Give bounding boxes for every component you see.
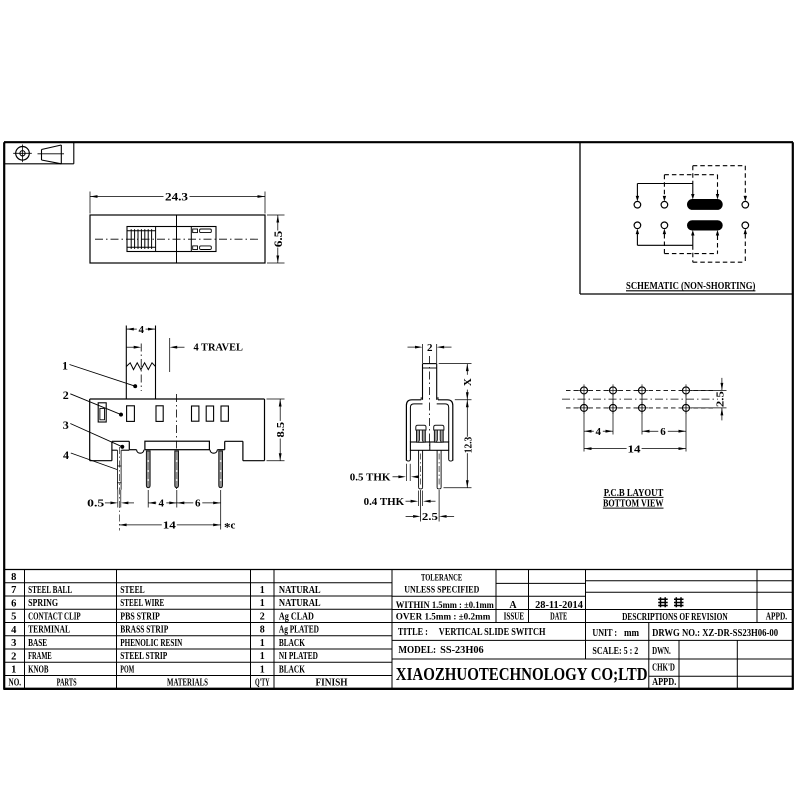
svg-text:UNIT :: UNIT :	[592, 628, 617, 639]
svg-text:APPD.: APPD.	[652, 677, 677, 688]
svg-text:7: 7	[11, 585, 16, 596]
svg-text:12.3: 12.3	[463, 436, 475, 453]
svg-text:VERTICAL SLIDE SWITCH: VERTICAL SLIDE SWITCH	[439, 627, 546, 638]
svg-text:MATERIALS: MATERIALS	[167, 678, 208, 689]
svg-text:UNLESS SPECIFIED: UNLESS SPECIFIED	[404, 586, 479, 596]
svg-text:BLACK: BLACK	[279, 664, 305, 675]
svg-text:*: *	[224, 519, 231, 534]
svg-text:ISSUE: ISSUE	[504, 612, 525, 623]
svg-text:4: 4	[159, 498, 165, 510]
svg-text:2: 2	[11, 651, 16, 662]
svg-text:X: X	[462, 378, 474, 386]
svg-text:Q'TY: Q'TY	[255, 678, 270, 689]
svg-text:FRAME: FRAME	[28, 651, 52, 662]
svg-text:BASE: BASE	[28, 638, 47, 649]
svg-text:SPRING: SPRING	[28, 598, 58, 609]
svg-text:CONTACT CLIP: CONTACT CLIP	[28, 611, 81, 622]
svg-text:4: 4	[596, 426, 602, 438]
svg-text:1: 1	[260, 598, 265, 609]
svg-text:DWN.: DWN.	[652, 646, 671, 657]
svg-text:TERMINAL: TERMINAL	[28, 625, 70, 636]
svg-text:6: 6	[660, 426, 666, 438]
svg-text:POM: POM	[120, 664, 134, 675]
svg-text:A: A	[509, 600, 517, 611]
svg-text:0.4 THK: 0.4 THK	[364, 497, 405, 508]
svg-text:NI PLATED: NI PLATED	[279, 651, 318, 662]
svg-text:DESCRIPTIONS OF REVISION: DESCRIPTIONS OF REVISION	[622, 612, 728, 623]
svg-text:2: 2	[260, 611, 265, 622]
svg-text:STEEL: STEEL	[120, 585, 145, 596]
svg-text:STEEL STRIP: STEEL STRIP	[120, 651, 167, 662]
svg-text:4: 4	[63, 448, 69, 462]
svg-text:0.5 THK: 0.5 THK	[350, 472, 391, 483]
svg-text:3: 3	[63, 418, 69, 432]
svg-text:STEEL BALL: STEEL BALL	[28, 585, 72, 596]
svg-text:SCALE: 5 : 2: SCALE: 5 : 2	[592, 646, 638, 657]
svg-text:c: c	[231, 519, 236, 531]
svg-text:0.5: 0.5	[87, 498, 104, 509]
svg-text:NATURAL: NATURAL	[279, 598, 321, 609]
svg-text:1: 1	[11, 665, 16, 676]
svg-text:6: 6	[195, 498, 201, 510]
svg-text:8: 8	[11, 572, 16, 583]
svg-text:5: 5	[11, 612, 16, 623]
svg-text:PARTS: PARTS	[57, 678, 77, 689]
svg-text:NO.: NO.	[9, 678, 22, 689]
svg-text:Ag PLATED: Ag PLATED	[279, 625, 319, 636]
svg-text:OVER 1.5mm : ±0.2mm: OVER 1.5mm : ±0.2mm	[396, 613, 491, 623]
svg-text:Ag CLAD: Ag CLAD	[279, 611, 314, 622]
svg-text:PHENOLIC RESIN: PHENOLIC RESIN	[120, 638, 183, 649]
svg-text:mm: mm	[624, 628, 640, 639]
svg-text:28-11-2014: 28-11-2014	[535, 600, 583, 611]
svg-text:2.5: 2.5	[716, 391, 727, 407]
svg-text:24.3: 24.3	[165, 191, 188, 203]
svg-text:FINISH: FINISH	[316, 678, 348, 689]
svg-text:2: 2	[427, 342, 433, 354]
svg-text:4: 4	[11, 625, 17, 636]
svg-text:DRWG NO.: XZ-DR-SS23H06-00: DRWG NO.: XZ-DR-SS23H06-00	[652, 628, 778, 639]
svg-text:8.5: 8.5	[275, 421, 287, 437]
svg-text:XIAOZHUOTECHNOLOGY CO;LTD: XIAOZHUOTECHNOLOGY CO;LTD	[396, 664, 648, 684]
svg-text:STEEL WIRE: STEEL WIRE	[120, 598, 164, 609]
svg-text:APPD.: APPD.	[766, 612, 788, 623]
svg-text:1: 1	[260, 651, 265, 662]
svg-text:SCHEMATIC (NON-SHORTING): SCHEMATIC (NON-SHORTING)	[626, 280, 756, 292]
svg-text:1: 1	[260, 664, 265, 675]
svg-text:14: 14	[628, 443, 642, 455]
svg-text:3: 3	[11, 638, 16, 649]
svg-text:NATURAL: NATURAL	[279, 585, 321, 596]
svg-text:DATE: DATE	[550, 612, 567, 623]
svg-text:2.5: 2.5	[422, 512, 438, 523]
svg-text:WITHIN 1.5mm : ±0.1mm: WITHIN 1.5mm : ±0.1mm	[396, 601, 494, 611]
svg-text:1: 1	[62, 359, 68, 373]
svg-text:TITLE :: TITLE :	[398, 627, 428, 638]
svg-text:TOLERANCE: TOLERANCE	[421, 573, 462, 583]
svg-text:KNOB: KNOB	[28, 664, 49, 675]
svg-text:CHK'D: CHK'D	[652, 663, 675, 674]
svg-text:SS-23H06: SS-23H06	[440, 645, 484, 656]
svg-text:8: 8	[260, 625, 265, 636]
svg-text:BRASS STRIP: BRASS STRIP	[120, 625, 168, 636]
svg-text:4: 4	[139, 324, 145, 336]
svg-text:14: 14	[163, 520, 177, 532]
svg-text:2: 2	[63, 388, 69, 402]
svg-text:1: 1	[260, 638, 265, 649]
svg-text:MODEL:: MODEL:	[398, 645, 436, 656]
svg-text:6.5: 6.5	[273, 230, 285, 247]
svg-text:BLACK: BLACK	[279, 638, 305, 649]
svg-text:4 TRAVEL: 4 TRAVEL	[193, 343, 243, 354]
svg-text:PBS STRIP: PBS STRIP	[120, 611, 160, 622]
svg-text:6: 6	[11, 598, 16, 609]
svg-text:1: 1	[260, 585, 265, 596]
